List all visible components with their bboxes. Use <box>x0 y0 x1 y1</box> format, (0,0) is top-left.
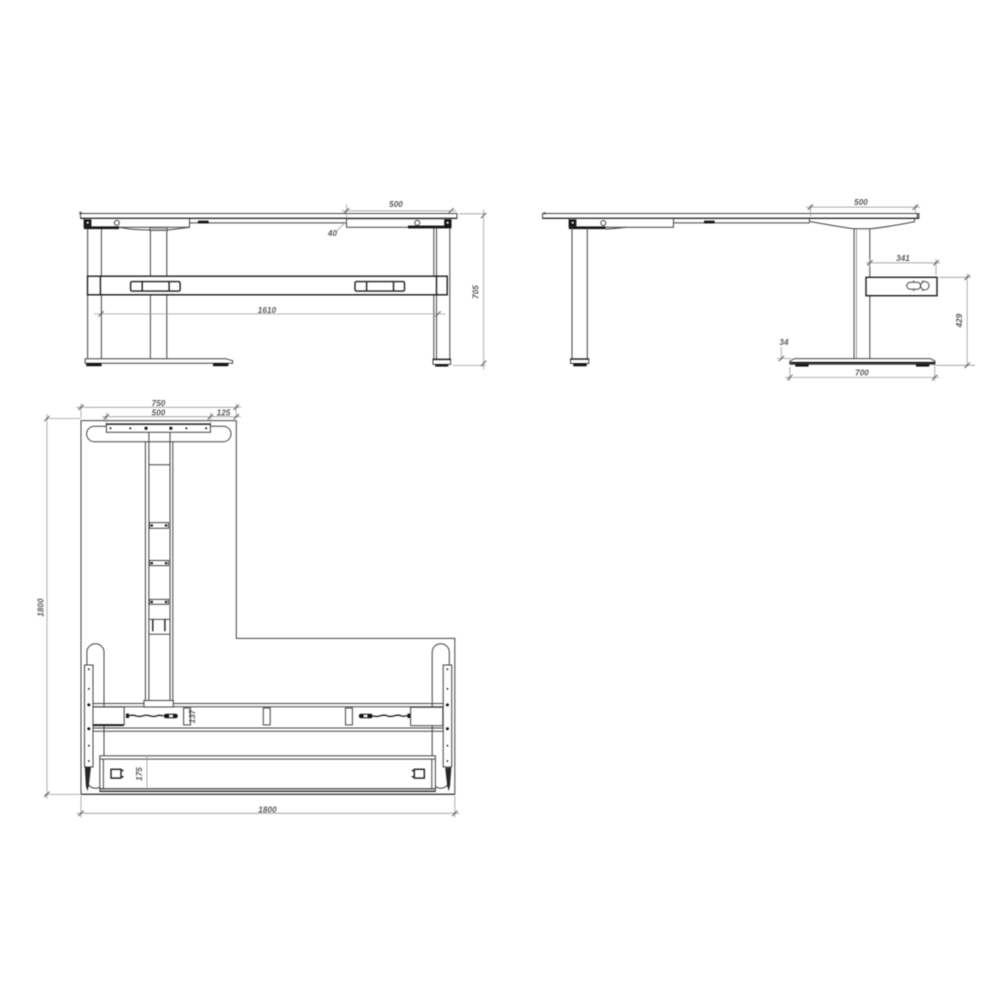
svg-text:34: 34 <box>779 338 789 347</box>
svg-text:750: 750 <box>152 399 166 408</box>
svg-text:341: 341 <box>896 254 910 263</box>
svg-text:500: 500 <box>152 409 166 418</box>
svg-text:1800: 1800 <box>37 598 46 617</box>
svg-text:40: 40 <box>327 229 338 238</box>
svg-text:500: 500 <box>854 198 868 207</box>
svg-text:1800: 1800 <box>258 806 277 815</box>
svg-text:705: 705 <box>472 285 481 299</box>
svg-text:175: 175 <box>135 767 144 781</box>
svg-text:125: 125 <box>217 409 231 418</box>
svg-text:1610: 1610 <box>258 306 277 315</box>
svg-text:700: 700 <box>855 369 869 378</box>
svg-text:429: 429 <box>955 313 964 328</box>
svg-text:137: 137 <box>188 709 197 723</box>
svg-text:500: 500 <box>389 200 403 209</box>
